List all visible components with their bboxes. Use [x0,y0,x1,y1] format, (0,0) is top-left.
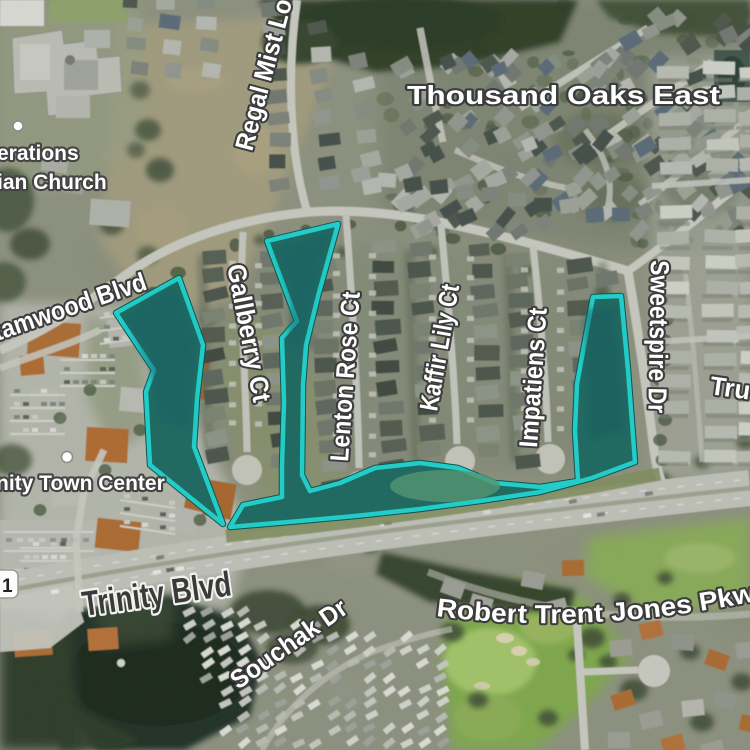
svg-text:1: 1 [2,576,13,597]
svg-text:erations: erations [0,142,79,165]
svg-text:Sweetspire Dr: Sweetspire Dr [642,260,675,414]
svg-text:ian Church: ian Church [0,171,107,194]
svg-text:nity Town Center: nity Town Center [0,472,165,495]
svg-text:Tru: Tru [708,370,750,405]
svg-text:Thousand Oaks East: Thousand Oaks East [407,80,720,110]
